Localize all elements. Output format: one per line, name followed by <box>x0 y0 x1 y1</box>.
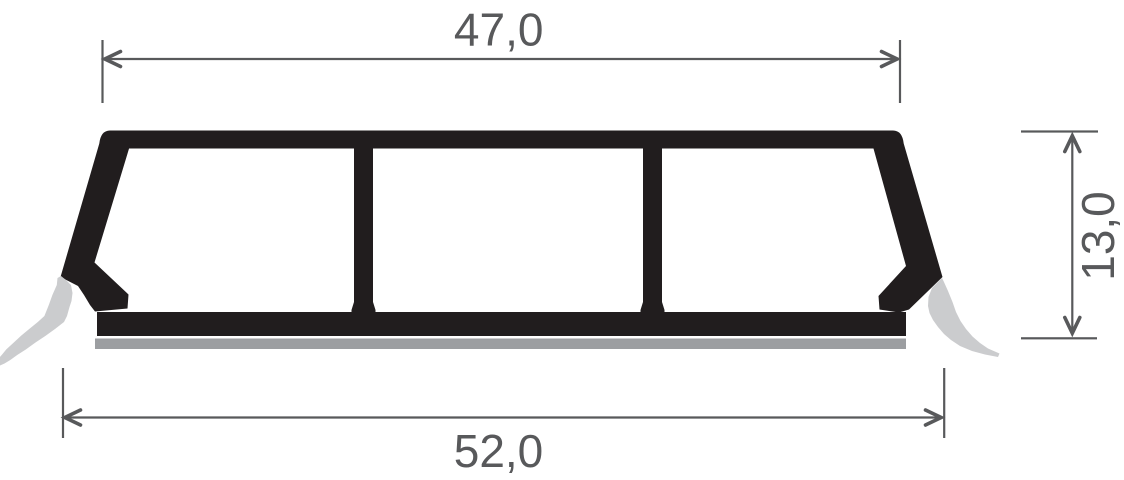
svg-text:13,0: 13,0 <box>1072 191 1124 281</box>
svg-text:47,0: 47,0 <box>454 4 544 56</box>
svg-text:52,0: 52,0 <box>454 425 544 477</box>
